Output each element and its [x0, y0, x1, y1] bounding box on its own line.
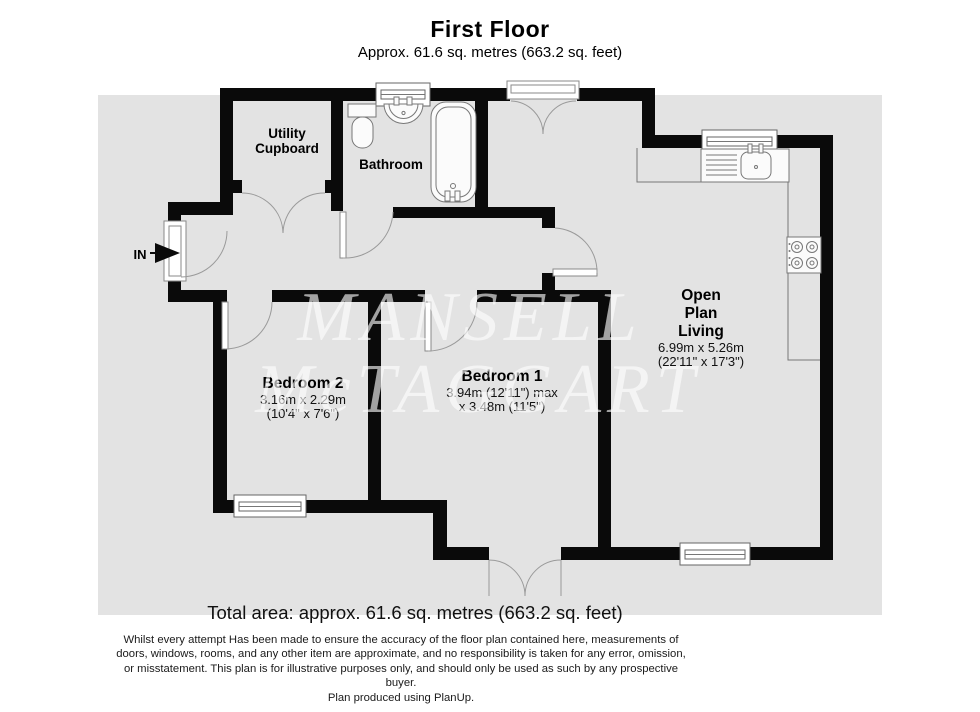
- room-label-bathroom: Bathroom: [359, 157, 423, 172]
- kitchen-sink: [701, 144, 789, 182]
- in-label: IN: [134, 247, 147, 262]
- plan-credit: Plan produced using PlanUp.: [115, 691, 687, 705]
- utility-name-line2: Cupboard: [255, 141, 319, 156]
- toilet: [348, 104, 376, 148]
- watermark: MANSELL McTAGGART: [254, 279, 700, 428]
- utility-name-line1: Utility: [268, 126, 306, 141]
- living-name-line2: Plan: [685, 305, 718, 322]
- total-area-text: Total area: approx. 61.6 sq. metres (663…: [130, 602, 700, 624]
- disclaimer: Whilst every attempt Has been made to en…: [115, 633, 687, 705]
- window-living: [680, 543, 750, 565]
- bathroom-name: Bathroom: [359, 157, 423, 172]
- living-name-line1: Open: [681, 287, 721, 304]
- bathtub: [431, 102, 476, 202]
- hob: [787, 237, 821, 273]
- disclaimer-line: or misstatement. This plan is for illust…: [115, 662, 687, 676]
- disclaimer-line: buyer.: [115, 676, 687, 690]
- living-name-line3: Living: [678, 323, 724, 340]
- window-bathroom: [376, 83, 430, 106]
- window-bedroom-2: [234, 495, 306, 517]
- disclaimer-line: doors, windows, rooms, and any other ite…: [115, 647, 687, 661]
- floorplan-page: First Floor Approx. 61.6 sq. metres (663…: [0, 0, 980, 712]
- disclaimer-line: Whilst every attempt Has been made to en…: [115, 633, 687, 647]
- watermark-line2: McTAGGART: [254, 351, 700, 428]
- watermark-line1: MANSELL: [296, 279, 642, 356]
